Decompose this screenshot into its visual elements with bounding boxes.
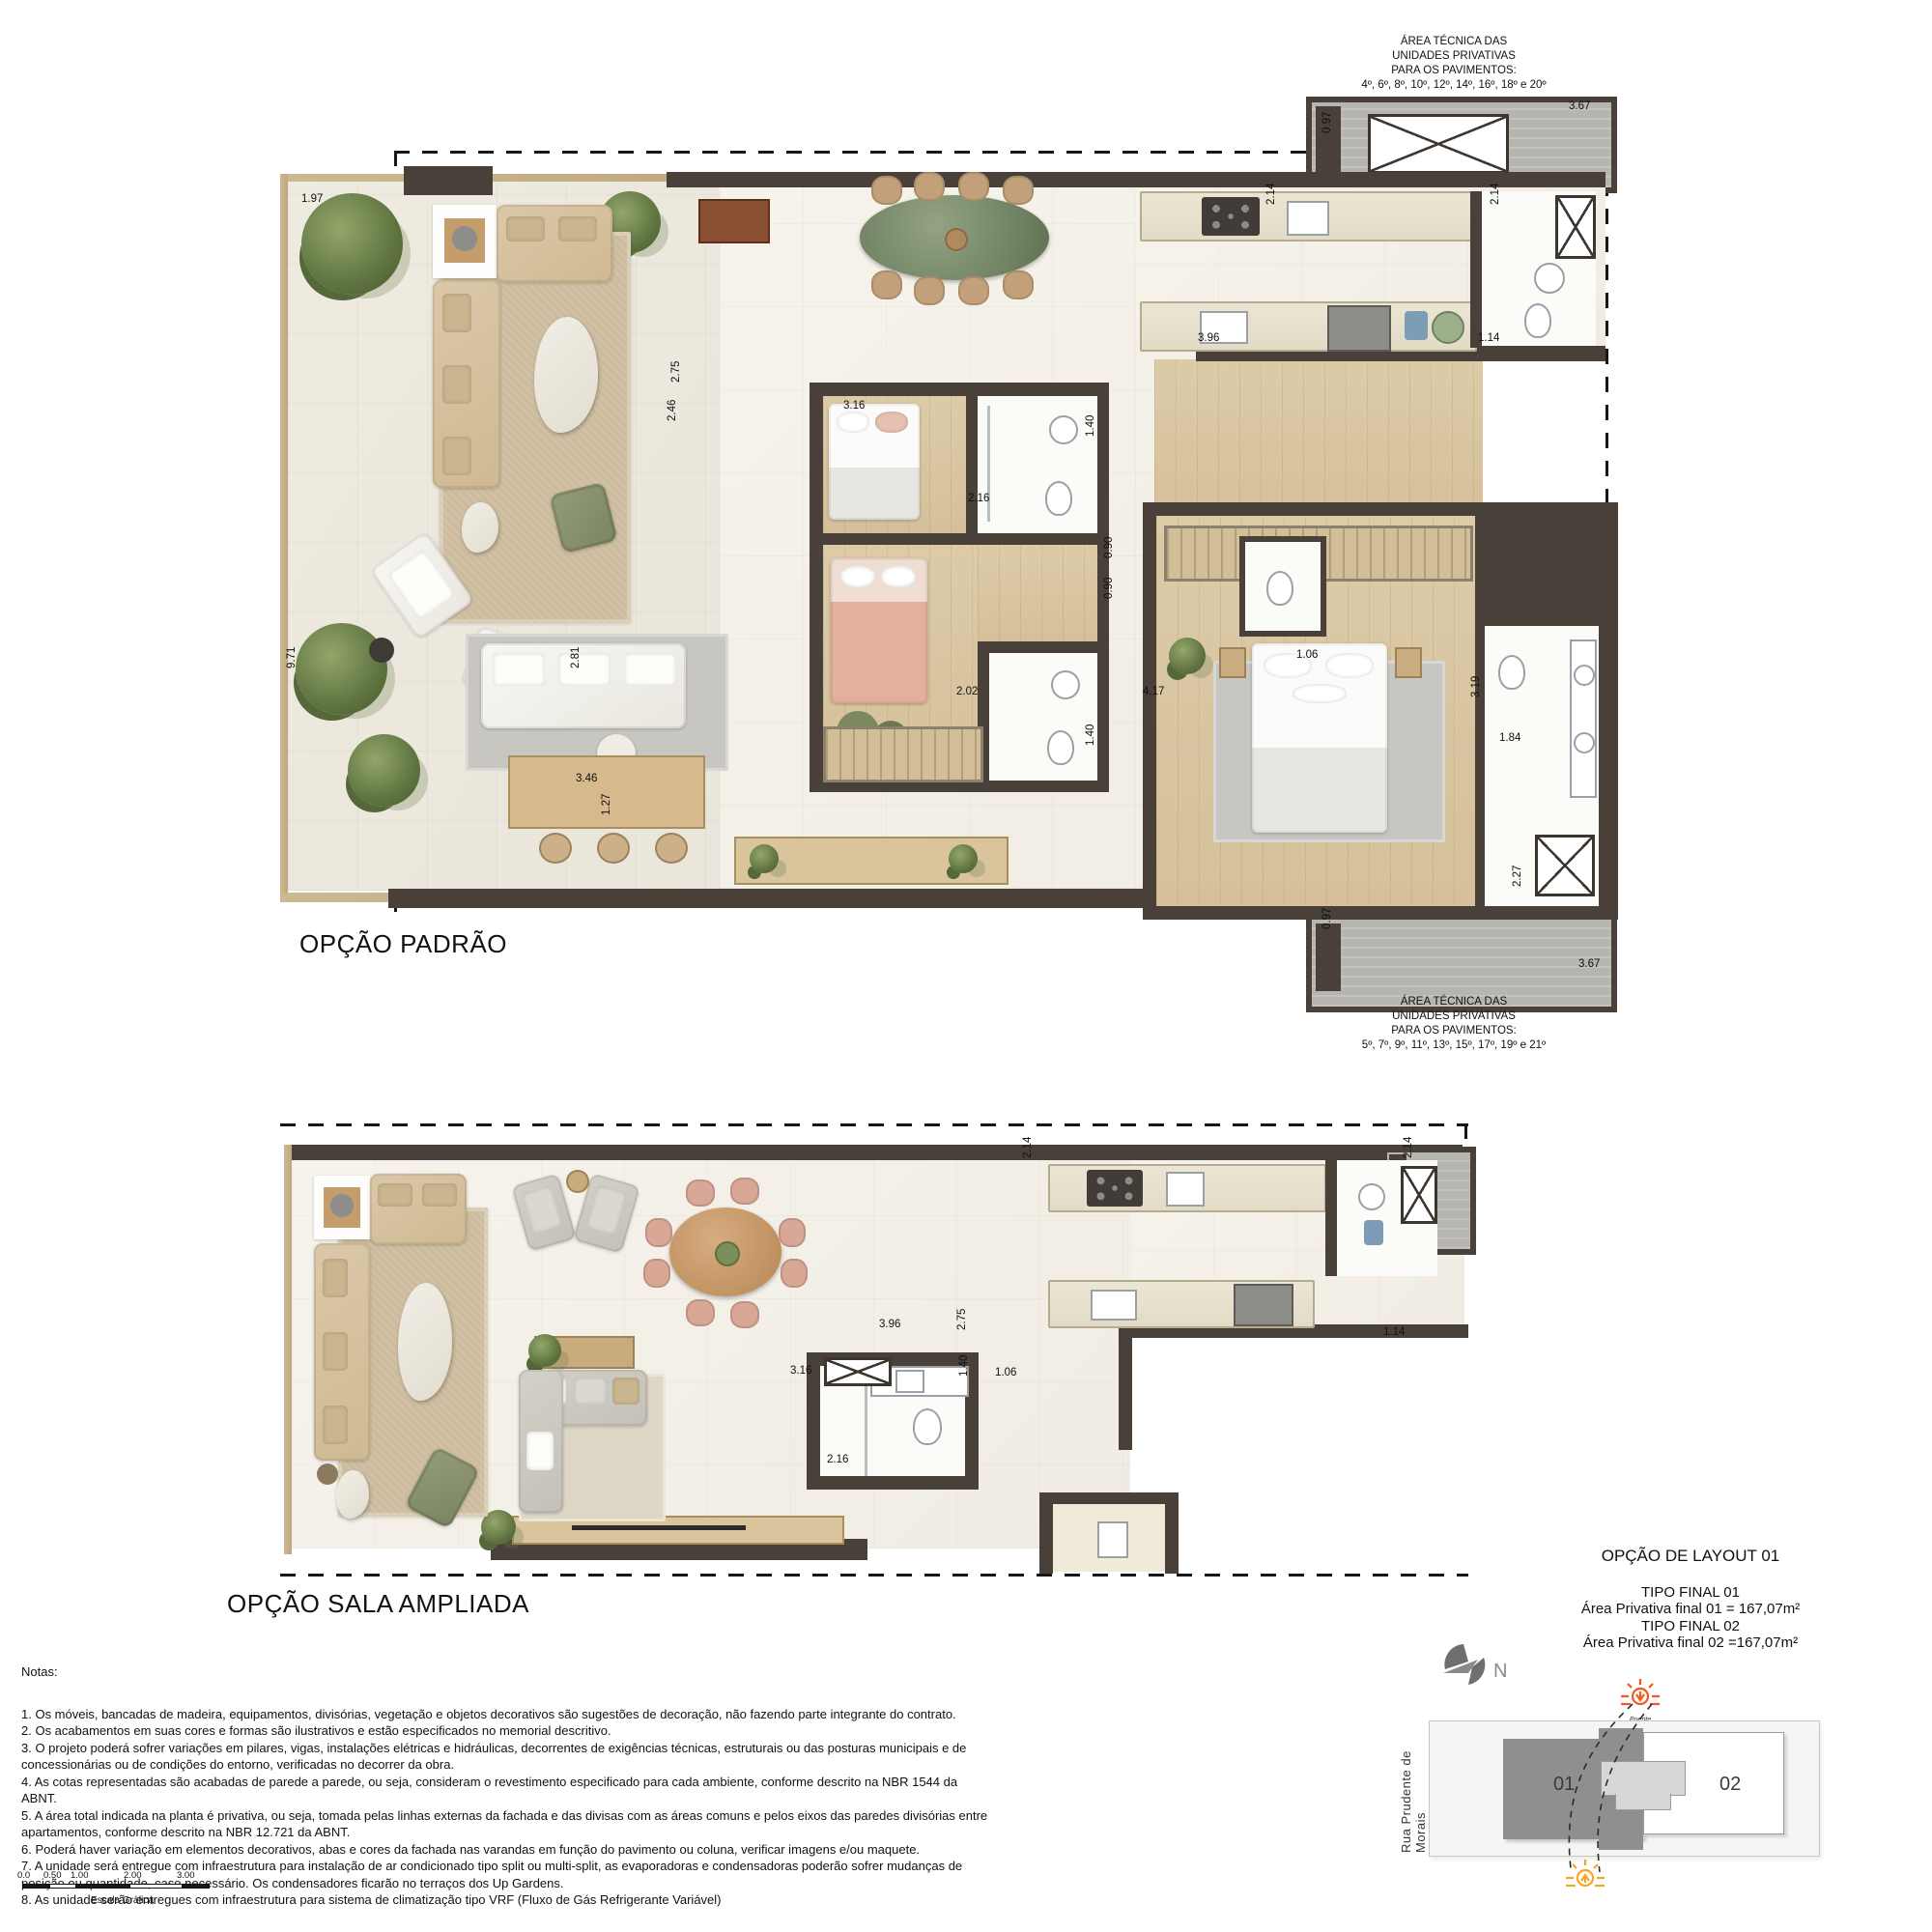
dimension-label: 0.97	[1321, 112, 1333, 133]
shower-box	[1401, 1166, 1437, 1224]
bed-pink	[831, 558, 927, 703]
terrace-edge	[284, 1145, 292, 1554]
white-sofa	[481, 643, 686, 728]
dimension-label: 1.06	[1296, 649, 1318, 661]
dimension-label: 3.16	[843, 400, 865, 412]
note-item: 3. O projeto poderá sofrer variações em …	[21, 1740, 992, 1774]
plan-title-padrao: OPÇÃO PADRÃO	[299, 929, 507, 959]
kitchen-counter	[1140, 191, 1477, 241]
sink-icon	[1051, 670, 1080, 699]
dimension-label: 3.96	[879, 1319, 900, 1330]
kitchen-island	[1048, 1280, 1315, 1328]
hall-wood-floor	[1154, 359, 1483, 512]
dimension-label: 2.81	[570, 647, 582, 668]
toilet-icon	[1045, 481, 1072, 516]
bathroom1-floor	[978, 396, 1097, 533]
dimension-label: 2.14	[1490, 184, 1501, 205]
wall-wc	[1039, 1492, 1053, 1574]
toilet-icon	[1047, 730, 1074, 765]
fridge-icon	[1234, 1284, 1293, 1326]
dimension-label: 3.19	[1470, 676, 1482, 697]
toilet-icon	[1524, 303, 1551, 338]
tech-note-line: 4º, 6º, 8º, 10º, 12º, 14º, 16º, 18º e 20…	[1299, 78, 1608, 93]
dimension-label: 4.17	[1143, 686, 1164, 697]
wall-wc	[1165, 1492, 1179, 1574]
dimension-label: 1.97	[301, 193, 323, 205]
cutting-board	[1287, 201, 1329, 236]
dimension-label: 1.14	[1478, 332, 1499, 344]
plant	[1169, 638, 1206, 674]
scale-tick-label: 3.00	[177, 1870, 195, 1881]
sun-path	[1488, 1696, 1700, 1880]
sofa-top	[497, 205, 612, 282]
bed-single	[829, 404, 920, 520]
wc-floor	[1053, 1504, 1165, 1572]
layout-info-line: Área Privativa final 02 =167,07m²	[1565, 1634, 1816, 1652]
dimension-label: 3.96	[1198, 332, 1219, 344]
plant-pot	[1432, 311, 1464, 344]
dimension-label: 2.16	[968, 493, 989, 504]
tech-area-note-bottom: ÁREA TÉCNICA DASUNIDADES PRIVATIVASPARA …	[1299, 995, 1608, 1053]
dimension-label: 3.67	[1569, 100, 1590, 112]
toilet-icon	[1498, 655, 1525, 690]
dimension-label: 0.90	[1103, 578, 1115, 599]
terrace-edge	[280, 174, 288, 900]
master-bath-floor	[1485, 626, 1599, 906]
tv-icon	[572, 1525, 746, 1530]
dining-centerpiece	[945, 228, 968, 251]
sink-icon	[1574, 732, 1595, 753]
dimension-label: 1.84	[1499, 732, 1520, 744]
dashed-boundary	[394, 151, 1306, 154]
layout-option-title: OPÇÃO DE LAYOUT 01	[1565, 1548, 1816, 1565]
notes-block: Notas: 1. Os móveis, bancadas de madeira…	[21, 1663, 992, 1909]
shower-box	[1535, 835, 1595, 896]
note-item: 1. Os móveis, bancadas de madeira, equip…	[21, 1706, 992, 1723]
scale-tick-label: 1.00	[71, 1870, 89, 1881]
sink-icon	[1358, 1183, 1385, 1210]
sink-icon	[1049, 415, 1078, 444]
compass-label: N	[1493, 1661, 1507, 1682]
architectural-sheet: ÁREA TÉCNICA DASUNIDADES PRIVATIVASPARA …	[0, 0, 1932, 1932]
bar-console	[698, 199, 770, 243]
dimension-label: 2.75	[670, 361, 682, 383]
tech-note-line: 5º, 7º, 9º, 11º, 13º, 15º, 17º, 19º e 21…	[1299, 1038, 1608, 1053]
note-item: 6. Poderá haver variação em elementos de…	[21, 1841, 992, 1859]
nightstand	[1219, 647, 1246, 678]
toilet-icon	[913, 1408, 942, 1445]
dimension-label: 9.71	[286, 647, 298, 668]
sideboard	[734, 837, 1009, 885]
dimension-label: 2.27	[1512, 866, 1523, 887]
wall-bath-divider	[1470, 191, 1482, 348]
dimension-label: 2.14	[1022, 1137, 1034, 1158]
plant	[301, 193, 403, 295]
scale-tick-label: 0.0	[17, 1870, 30, 1881]
north-arrow-icon	[1443, 1644, 1485, 1685]
dimension-label: 2.75	[956, 1309, 968, 1330]
sofa-left	[314, 1243, 370, 1461]
nightstand	[1395, 647, 1422, 678]
powder-room	[1239, 536, 1326, 637]
dimension-label: 1.06	[995, 1367, 1016, 1378]
appliance-blue	[1405, 311, 1428, 340]
compass: N	[1439, 1640, 1526, 1689]
kitchen-counter	[1048, 1164, 1326, 1212]
dining-centerpiece	[715, 1241, 740, 1266]
note-item: 5. A área total indicada na planta é pri…	[21, 1807, 992, 1841]
shower-box	[1555, 195, 1596, 259]
terrace-edge	[280, 174, 720, 182]
dimension-label: 2.46	[667, 400, 678, 421]
note-item: 4. As cotas representadas são acabadas d…	[21, 1774, 992, 1807]
kitchen-island	[1140, 301, 1477, 352]
washer-box	[824, 1357, 892, 1386]
corridor-floor	[978, 545, 1097, 641]
sofa-top	[370, 1174, 467, 1244]
scale-caption: Escala Gráfica	[91, 1895, 154, 1906]
corner-table	[433, 205, 497, 278]
wardrobe	[823, 726, 983, 782]
sink-icon	[1091, 1290, 1137, 1321]
dashed-boundary	[280, 1574, 1468, 1577]
bathroom-top-floor	[1482, 191, 1596, 346]
tech-note-line: PARA OS PAVIMENTOS:	[1299, 64, 1608, 78]
dimension-label: 3.16	[790, 1365, 811, 1377]
hatch-box	[1368, 114, 1509, 174]
wall-pillar	[404, 166, 493, 195]
sink-icon	[1574, 665, 1595, 686]
scale-tick-label: 2.00	[124, 1870, 142, 1881]
plant	[348, 734, 420, 807]
sideboard	[534, 1336, 635, 1369]
shower-screen	[987, 406, 990, 522]
layout-info-line: Área Privativa final 01 = 167,07m²	[1565, 1601, 1816, 1618]
cutting-board	[1166, 1172, 1205, 1207]
sink-icon	[1097, 1521, 1128, 1558]
sink-icon	[1534, 263, 1565, 294]
bed-double	[1252, 643, 1387, 833]
layout-info-line: TIPO FINAL 01	[1565, 1584, 1816, 1602]
floor-plan-sala-ampliada: 2.142.143.961.143.162.751.401.062.16	[280, 1125, 1468, 1589]
dimension-label: 1.40	[1085, 415, 1096, 437]
dimension-label: 3.67	[1578, 958, 1600, 970]
wall-notch	[1119, 1334, 1132, 1450]
dimension-label: 1.40	[1085, 724, 1096, 746]
street-label: Rua Prudente de Morais	[1399, 1725, 1428, 1853]
plan-title-ampliada: OPÇÃO SALA AMPLIADA	[227, 1589, 529, 1619]
side-table	[369, 638, 394, 663]
bathroom2-floor	[989, 653, 1097, 781]
note-item: 8. As unidade serão entregues com infrae…	[21, 1891, 992, 1909]
dimension-label: 2.14	[1265, 184, 1277, 205]
wall-bath-divider	[1325, 1160, 1337, 1276]
wall-top	[667, 172, 1605, 187]
tech-note-line: UNIDADES PRIVATIVAS	[1299, 49, 1608, 64]
corner-table	[314, 1176, 370, 1239]
vanity-counter	[1570, 639, 1597, 798]
note-item: 2. Os acabamentos em suas cores e formas…	[21, 1722, 992, 1740]
tech-area-note-top: ÁREA TÉCNICA DASUNIDADES PRIVATIVASPARA …	[1299, 35, 1608, 93]
scale-tick-label: 0.50	[43, 1870, 62, 1881]
plant	[296, 623, 387, 715]
appliance-blue	[1364, 1220, 1383, 1245]
wall-top	[292, 1145, 1463, 1160]
tech-note-line: PARA OS PAVIMENTOS:	[1299, 1024, 1608, 1038]
stove-icon	[1202, 197, 1260, 236]
dimension-label: 2.16	[827, 1454, 848, 1465]
side-table-round	[317, 1463, 338, 1485]
dimension-label: 2.14	[1403, 1137, 1414, 1158]
layout-info-line: TIPO FINAL 02	[1565, 1618, 1816, 1635]
layout-info: OPÇÃO DE LAYOUT 01 TIPO FINAL 01Área Pri…	[1565, 1548, 1816, 1652]
bathroom-small-floor	[1337, 1160, 1437, 1276]
dimension-label: 0.90	[1103, 537, 1115, 558]
toilet-icon	[1266, 571, 1293, 606]
family-sofa-left	[519, 1370, 563, 1513]
round-side-table	[566, 1170, 589, 1193]
tech-note-line: ÁREA TÉCNICA DAS	[1299, 995, 1608, 1009]
wall-wc	[1039, 1492, 1179, 1504]
tech-note-line: UNIDADES PRIVATIVAS	[1299, 1009, 1608, 1024]
tech-note-line: ÁREA TÉCNICA DAS	[1299, 35, 1608, 49]
dimension-label: 3.46	[576, 773, 597, 784]
dimension-label: 1.14	[1383, 1326, 1405, 1338]
dimension-label: 1.40	[958, 1355, 970, 1377]
fridge-icon	[1327, 305, 1391, 352]
floor-plan-opcao-padrao: 1.979.712.752.463.161.402.160.900.902.81…	[280, 97, 1623, 1005]
dimension-label: 2.02	[956, 686, 978, 697]
desk	[508, 755, 705, 829]
notes-label: Notas:	[21, 1663, 992, 1681]
sink-icon	[895, 1370, 924, 1393]
dimension-label: 1.27	[601, 794, 612, 815]
site-unit-02: 02	[1719, 1774, 1741, 1796]
stove-icon	[1087, 1170, 1143, 1207]
dimension-label: 0.97	[1321, 908, 1333, 929]
dashed-boundary	[280, 1123, 1468, 1126]
sofa-left	[433, 280, 500, 488]
